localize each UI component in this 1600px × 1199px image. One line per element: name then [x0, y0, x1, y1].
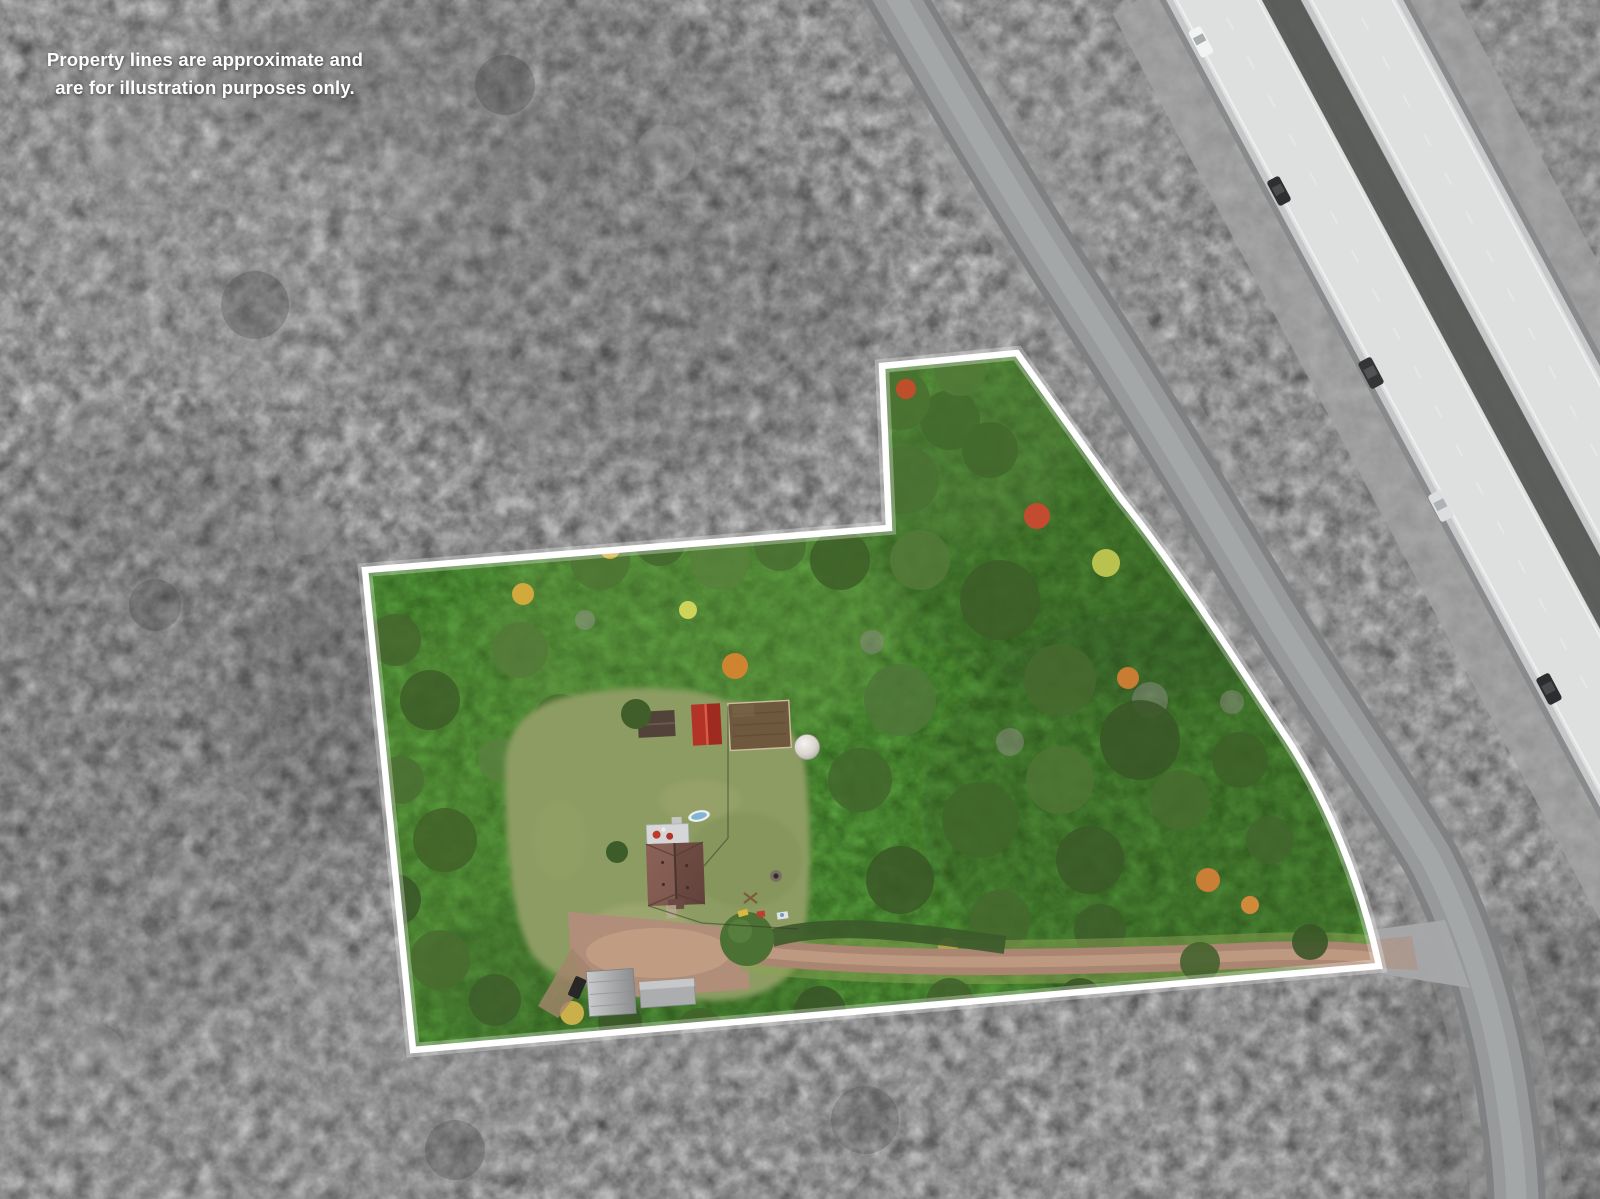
tree [962, 422, 1018, 478]
tree [492, 622, 548, 678]
play-item-blue-dot [780, 913, 784, 917]
aerial-photo: Property lines are approximate and are f… [0, 0, 1600, 1199]
tree-clump-shadow [221, 271, 289, 339]
dead-patch [575, 610, 595, 630]
tree [864, 664, 936, 736]
fire-pit [770, 870, 782, 882]
autumn-tree [1092, 549, 1120, 577]
tree-clump [297, 957, 353, 1013]
tree-clump [635, 125, 695, 185]
roof-facet-west [646, 843, 677, 906]
tree [410, 930, 470, 990]
tree-clump [371, 151, 439, 219]
tree-clump [90, 120, 150, 180]
tree [942, 782, 1018, 858]
play-item-red [757, 910, 766, 917]
tree [890, 530, 950, 590]
tree [1246, 816, 1294, 864]
tree [1150, 770, 1210, 830]
dirt-road [742, 950, 1384, 962]
autumn-tree [679, 601, 697, 619]
dead-patch [1220, 690, 1244, 714]
tree [1100, 700, 1180, 780]
fire-pit-ash [773, 873, 778, 878]
tree-clump-shadow [475, 55, 535, 115]
aerial-photo-canvas [0, 0, 1600, 1199]
bush [606, 841, 628, 863]
tree-clump [679, 1029, 731, 1081]
autumn-tree [1241, 896, 1259, 914]
autumn-tree [512, 583, 534, 605]
overhanging-tree [621, 699, 651, 729]
tree-clump-shadow [831, 1086, 899, 1154]
tree [960, 560, 1040, 640]
large-yard-tree-highlight [728, 919, 752, 943]
disclaimer-line-1: Property lines are approximate and [40, 46, 370, 74]
tree [469, 974, 521, 1026]
dome-tent [795, 735, 820, 760]
tree-clump-shadow [425, 1120, 485, 1180]
tree [866, 846, 934, 914]
tree [1026, 746, 1094, 814]
tree-clump-shadow [129, 579, 181, 631]
tree-clump [151, 851, 219, 919]
autumn-tree [896, 379, 916, 399]
tree-clump [504, 399, 556, 451]
tree-clump [275, 495, 335, 555]
tree [1056, 826, 1124, 894]
dead-patch [996, 728, 1024, 756]
tree [1024, 644, 1096, 716]
tree [1292, 924, 1328, 960]
tree [413, 808, 477, 872]
tree [400, 670, 460, 730]
dead-patch [860, 630, 884, 654]
tree [828, 748, 892, 812]
garden-plot [728, 700, 791, 750]
disclaimer-text: Property lines are approximate and are f… [40, 46, 370, 102]
autumn-tree [1117, 667, 1139, 689]
disclaimer-line-2: are for illustration purposes only. [40, 74, 370, 102]
tree-clump [67, 397, 123, 453]
garden-light-soil [732, 704, 755, 717]
lawn-worn-patch [534, 800, 586, 880]
red-shed [691, 703, 722, 745]
tree-clump [65, 1025, 125, 1085]
autumn-tree [1196, 868, 1220, 892]
autumn-tree [722, 653, 748, 679]
tree [1212, 732, 1268, 788]
autumn-tree [1024, 503, 1050, 529]
